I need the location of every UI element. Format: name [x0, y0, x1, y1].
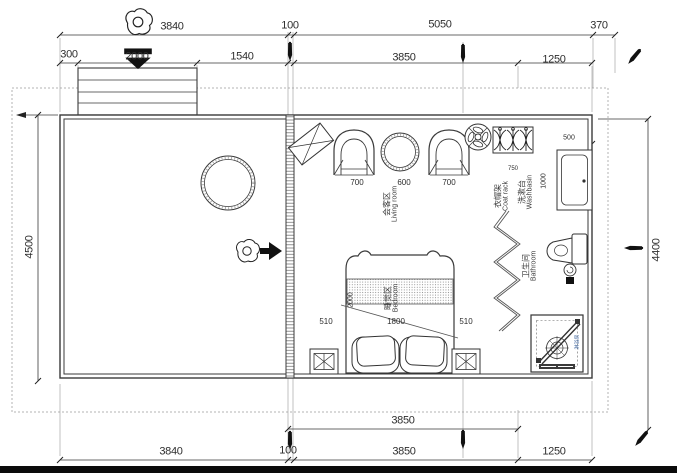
dim-top-370: 370: [590, 21, 607, 32]
pen-marker-icon: [627, 48, 643, 65]
pillow-left: [356, 336, 395, 367]
dim-top-3840: 3840: [160, 22, 183, 33]
dim-coatrack-750: 750: [508, 166, 518, 172]
bathroom-label-zh: 卫生间: [521, 251, 530, 281]
coat-rack-label-zh: 衣帽架: [493, 181, 502, 211]
dim-bed-2000: 2000: [348, 292, 355, 308]
dim-bottom2-100: 100: [279, 446, 296, 457]
building-outer-wall: [60, 115, 592, 378]
room-label-bathroom: 卫生间 Bathroom: [521, 251, 538, 281]
dim-top-100: 100: [281, 21, 298, 32]
pen-marker-icon: [461, 44, 465, 63]
dim-top-5050: 5050: [428, 20, 451, 31]
washbasin-label-zh: 洗漱台: [517, 175, 526, 209]
washbasin-fixture: [557, 150, 592, 210]
dim-bed-510-right: 510: [459, 318, 472, 326]
shower-label: 淋浴房: [576, 334, 581, 349]
dim-basin-500: 500: [563, 135, 575, 142]
dim-chair-left-700: 700: [350, 179, 363, 187]
dim-bottom2-1250: 1250: [542, 447, 565, 458]
coat-rack-label-en: Coat rack: [503, 181, 511, 211]
dim-basin-1000: 1000: [541, 173, 548, 189]
bathroom-label-en: Bathroom: [531, 251, 539, 281]
pillow-right: [405, 336, 444, 367]
dim-left-4500: 4500: [25, 235, 36, 258]
dim-bed-510-left: 510: [319, 318, 332, 326]
divider-wall: [286, 115, 294, 378]
floor-plan-page: 3840 100 5050 370 300 2000 1540 3850 125…: [0, 0, 677, 473]
room-label-washbasin: 洗漱台 Washbasin: [517, 175, 534, 209]
dim-top2-1250: 1250: [542, 55, 565, 66]
dim-top2-3850: 3850: [392, 53, 415, 64]
dim-bottom2-3850: 3850: [392, 447, 415, 458]
dim-bottom-3850: 3850: [391, 416, 414, 427]
dim-right-4400: 4400: [652, 238, 663, 261]
left-dim-arrowhead: [16, 112, 26, 118]
coat-rack: [493, 127, 533, 153]
entrance-steps: [78, 68, 197, 115]
bedroom-label-en: Bedroom: [393, 284, 401, 312]
dim-bed-1800: 1800: [387, 318, 405, 326]
dim-top2-300: 300: [60, 50, 77, 61]
armchair-right: [429, 130, 469, 175]
pen-marker-icon: [624, 246, 643, 250]
pen-marker-icon: [634, 430, 650, 447]
right-arrow-icon: [260, 248, 270, 254]
dim-bottom2-3840: 3840: [159, 447, 182, 458]
room-label-living: 会客区 Living room: [382, 186, 399, 222]
armchair-left: [334, 130, 374, 175]
room-label-bedroom: 睡觉区 Bedroom: [383, 284, 400, 312]
fan-icon: [465, 124, 491, 150]
pen-marker-icon: [461, 430, 465, 449]
page-bottom-border: [0, 466, 677, 473]
nightstand-right: [452, 349, 480, 374]
nightstand-left: [310, 349, 338, 374]
dim-top2-2000: 2000: [125, 52, 148, 63]
room-label-coat-rack: 衣帽架 Coat rack: [493, 181, 510, 211]
floor-plan-drawing: [0, 0, 677, 473]
living-label-zh: 会客区: [382, 186, 391, 222]
washbasin-label-en: Washbasin: [527, 175, 535, 209]
dim-top2-1540: 1540: [230, 52, 253, 63]
pen-marker-icon: [288, 42, 292, 61]
dim-chair-right-700: 700: [442, 179, 455, 187]
bedroom-label-zh: 睡觉区: [383, 284, 392, 312]
living-label-en: Living room: [392, 186, 400, 222]
